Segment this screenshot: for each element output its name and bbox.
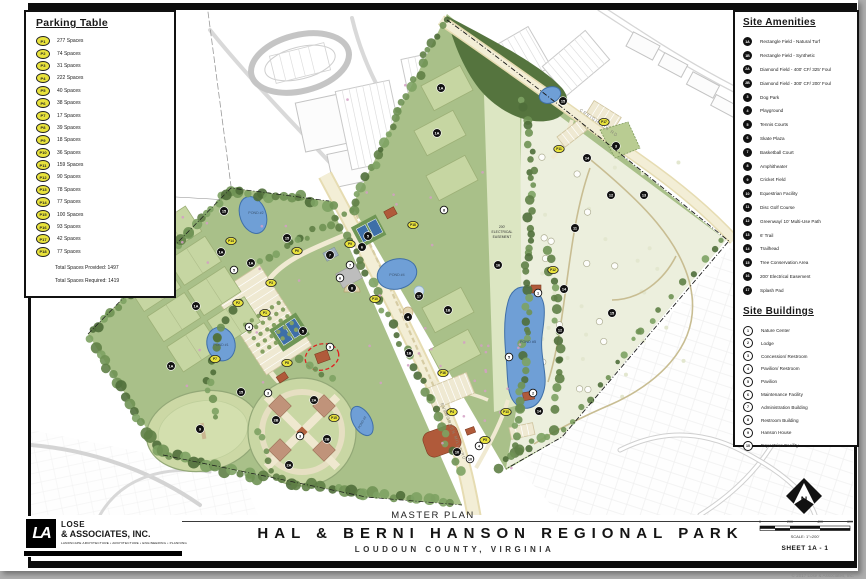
map-parking-marker: P1	[260, 309, 270, 316]
site-amenity-row-marker: 11	[743, 203, 752, 212]
svg-text:P15: P15	[331, 416, 337, 420]
north-arrow-icon: N	[786, 478, 822, 514]
map-building-marker: 3	[296, 432, 304, 440]
map-amenity-marker: 2B	[323, 435, 332, 444]
site-amenity-row-label: Dog Park	[760, 95, 779, 100]
site-amenity-row-label: Basketball Court	[760, 150, 794, 155]
map-parking-marker: P7	[210, 355, 220, 362]
map-amenity-marker: 3	[612, 142, 621, 151]
parking-table-row-label: 38 Spaces	[57, 100, 81, 106]
easement-label-3: EASEMENT	[493, 235, 512, 239]
total-spaces-required: Total Spaces Required: 1419	[55, 278, 174, 284]
parking-table-row-label: 36 Spaces	[57, 150, 81, 156]
map-amenity-marker: 9	[196, 425, 205, 434]
site-amenity-row-marker: 5	[743, 120, 752, 129]
svg-text:P18: P18	[410, 223, 416, 227]
svg-text:2B: 2B	[274, 418, 279, 423]
copyright-note: © 2017 Lose & Associates, Inc.	[792, 573, 854, 578]
site-amenity-row-label: Rectangle Field - Natural Turf	[760, 39, 820, 44]
svg-text:1B: 1B	[407, 351, 412, 356]
svg-text:1A: 1A	[249, 261, 254, 266]
site-amenity-row-marker: 16	[743, 272, 752, 281]
site-amenity-row-label: Skate Plaza	[760, 136, 785, 141]
parking-table-row-label: 77 Spaces	[57, 249, 81, 255]
svg-text:P7: P7	[213, 357, 217, 361]
site-building-row-marker: 8	[743, 415, 753, 425]
firm-name-bottom: & ASSOCIATES, INC.	[61, 529, 151, 539]
site-building-row-marker: 3	[743, 351, 753, 361]
svg-text:P6: P6	[295, 249, 299, 253]
map-amenity-marker: 1A	[167, 362, 176, 371]
parking-table-row: P717 Spaces	[36, 109, 174, 121]
map-parking-marker: P2	[233, 299, 243, 306]
parking-table-row-marker: P3	[36, 61, 50, 71]
map-amenity-marker: 15	[608, 309, 617, 318]
svg-text:5: 5	[508, 355, 510, 359]
site-amenity-row-marker: 15	[743, 258, 752, 267]
map-parking-marker: P11	[554, 145, 564, 152]
site-building-row-label: Hanson House	[761, 430, 791, 435]
total-spaces-provided: Total Spaces Provided: 1497	[55, 265, 174, 271]
svg-text:P14: P14	[228, 239, 234, 243]
site-building-row-marker: 10	[743, 441, 753, 451]
sheet-number: SHEET 1A - 1	[782, 545, 829, 552]
svg-text:9: 9	[329, 345, 331, 349]
parking-table-row-marker: P18	[36, 247, 50, 257]
svg-text:7: 7	[349, 263, 351, 267]
parking-table-row-label: 100 Spaces	[57, 212, 83, 218]
site-building-row: 7Administration Building	[743, 401, 857, 414]
map-parking-marker: P10	[370, 295, 380, 302]
parking-table-row-marker: P8	[36, 123, 50, 133]
site-amenities-title: Site Amenities	[743, 17, 857, 28]
parking-table-row-marker: P13	[36, 185, 50, 195]
map-building-marker: 5	[230, 266, 238, 274]
map-parking-marker: P6	[292, 247, 302, 254]
svg-text:1A: 1A	[219, 250, 224, 255]
map-amenity-marker: 2B	[272, 416, 281, 425]
parking-table-row-marker: P7	[36, 111, 50, 121]
site-amenity-row: 17Splash Pad	[743, 283, 857, 297]
site-building-row: 8Restroom Building	[743, 414, 857, 427]
site-building-row-label: Restroom Building	[761, 418, 799, 423]
title-block: MASTER PLAN HAL & BERNI HANSON REGIONAL …	[172, 508, 853, 560]
firm-tagline: LANDSCAPE ARCHITECTURE • ARCHITECTURE • …	[61, 541, 187, 545]
parking-table-row-label: 159 Spaces	[57, 162, 83, 168]
map-parking-marker: P13	[501, 408, 511, 415]
svg-text:1A: 1A	[169, 364, 174, 369]
map-amenity-marker: 1A	[437, 84, 446, 93]
map-amenity-marker: 15	[237, 388, 246, 397]
site-amenity-row-marker: 13	[743, 231, 752, 240]
svg-text:P17: P17	[601, 120, 607, 124]
parking-table-row-marker: P4	[36, 73, 50, 83]
site-amenity-row-marker: 3	[743, 93, 752, 102]
scale-tick-0: 0	[759, 520, 761, 524]
map-parking-marker: P3	[266, 279, 276, 286]
map-parking-marker: P12	[548, 266, 558, 273]
site-amenity-row: 9Cricket Field	[743, 173, 857, 187]
site-building-row-label: Administration Building	[761, 405, 808, 410]
site-amenity-row-marker: 1A	[743, 37, 752, 46]
plan-sheet: POND #1 POND #2 POND #3 POND #4 POND #5 …	[0, 0, 858, 571]
parking-table-row: P839 Spaces	[36, 122, 174, 134]
map-building-marker: 4	[475, 442, 483, 450]
map-building-marker: 9	[326, 343, 334, 351]
parking-table-row-label: 31 Spaces	[57, 63, 81, 69]
parking-table-row-marker: P16	[36, 222, 50, 232]
site-building-row: 10Equestrian Facility	[743, 439, 857, 452]
site-amenity-row-label: Tree Conservation Area	[760, 260, 808, 265]
map-amenity-marker: 14	[535, 407, 544, 416]
site-amenity-row: 16200' Electrical Easement	[743, 270, 857, 284]
site-building-row-marker: 7	[743, 402, 753, 412]
parking-table-row-marker: P5	[36, 86, 50, 96]
parking-table-row-marker: P11	[36, 160, 50, 170]
north-letter: N	[801, 495, 808, 505]
site-building-row-marker: 1	[743, 326, 753, 336]
map-amenity-marker: 1A	[192, 302, 201, 311]
site-amenity-row-marker: 8	[743, 162, 752, 171]
map-parking-marker: P4	[447, 408, 457, 415]
site-building-row-label: Pavilion/ Restroom	[761, 366, 800, 371]
map-amenity-marker: 1B	[405, 349, 414, 358]
svg-text:P2: P2	[236, 301, 240, 305]
site-amenity-row-marker: 7	[743, 148, 752, 157]
site-amenity-row: 11Disc Golf Course	[743, 201, 857, 215]
svg-text:7: 7	[329, 253, 331, 258]
parking-table-row-label: 222 Spaces	[57, 75, 83, 81]
park-name-title: HAL & BERNI HANSON REGIONAL PARK	[160, 525, 841, 542]
map-amenity-marker: 1A	[433, 129, 442, 138]
map-amenity-marker: 16	[494, 261, 503, 270]
map-amenity-marker: 8	[348, 284, 357, 293]
easement-label-2: ELECTRICAL	[492, 230, 513, 234]
parking-table-row: P274 Spaces	[36, 47, 174, 59]
parking-table-row-label: 77 Spaces	[57, 199, 81, 205]
parking-table-row-label: 18 Spaces	[57, 137, 81, 143]
scale-tick-400: 400	[817, 520, 823, 524]
map-amenity-marker: 15	[559, 97, 568, 106]
site-amenity-row-label: Tennis Courts	[760, 122, 788, 127]
site-amenity-row-marker: 12	[743, 217, 752, 226]
svg-text:1A: 1A	[439, 86, 444, 91]
firm-logo: LA LOSE & ASSOCIATES, INC. LANDSCAPE ARC…	[24, 516, 182, 557]
svg-text:P5: P5	[483, 438, 487, 442]
map-amenity-marker: 1A	[247, 259, 256, 268]
pond2-label: POND #2	[248, 211, 263, 215]
map-amenity-marker: 2A	[285, 461, 294, 470]
site-amenity-row: 7Basketball Court	[743, 145, 857, 159]
site-amenity-row-marker: 6	[743, 134, 752, 143]
easement-label-1: 200'	[499, 225, 506, 229]
site-amenity-row: 10Equestrian Facility	[743, 187, 857, 201]
parking-table-row-label: 17 Spaces	[57, 113, 81, 119]
parking-table-row-marker: P12	[36, 172, 50, 182]
parking-table-row-marker: P14	[36, 197, 50, 207]
map-building-marker: 7	[346, 261, 354, 269]
scale-bar: 0 200 400 600 SCALE: 1"=200' SHEET 1A - …	[759, 520, 853, 552]
svg-text:1B: 1B	[446, 308, 451, 313]
svg-text:2A: 2A	[312, 398, 317, 403]
parking-table-row: P1877 Spaces	[36, 246, 174, 258]
site-amenity-row-label: Trailhead	[760, 246, 779, 251]
map-building-marker: 3	[264, 389, 272, 397]
parking-table-row-label: 39 Spaces	[57, 125, 81, 131]
parking-table-row: P918 Spaces	[36, 134, 174, 146]
site-building-row-marker: 5	[743, 377, 753, 387]
svg-text:P13: P13	[503, 410, 509, 414]
map-amenity-marker: 13	[640, 191, 649, 200]
map-amenity-marker: 7	[326, 251, 335, 260]
map-amenity-marker: 17	[415, 292, 424, 301]
site-amenity-row-label: Equestrian Facility	[760, 191, 798, 196]
pond1-label: POND #1	[213, 343, 228, 347]
parking-table-row: P15100 Spaces	[36, 208, 174, 220]
map-building-marker: 1	[534, 289, 542, 297]
site-amenity-row-marker: 14	[743, 244, 752, 253]
map-parking-marker: P16	[438, 369, 448, 376]
site-amenity-row: 136' Trail	[743, 228, 857, 242]
parking-table-row-label: 90 Spaces	[57, 174, 81, 180]
map-parking-marker: P17	[599, 118, 609, 125]
map-parking-marker: P15	[329, 414, 339, 421]
parking-table-row-marker: P9	[36, 135, 50, 145]
parking-table-row: P1290 Spaces	[36, 171, 174, 183]
map-parking-marker: P9	[345, 240, 355, 247]
site-buildings-title: Site Buildings	[743, 306, 857, 317]
site-building-row-marker: 9	[743, 428, 753, 438]
pond4-label: POND #4	[389, 273, 404, 277]
parking-table-row-label: 78 Spaces	[57, 187, 81, 193]
parking-table-row-label: 74 Spaces	[57, 51, 81, 57]
park-location: LOUDOUN COUNTY, VIRGINIA	[114, 545, 795, 554]
svg-text:1A: 1A	[435, 131, 440, 136]
map-amenity-marker: 12	[607, 191, 616, 200]
parking-table-row-label: 40 Spaces	[57, 88, 81, 94]
map-amenity-marker: 5	[364, 232, 373, 241]
parking-table-row-label: 42 Spaces	[57, 236, 81, 242]
site-amenity-row: 6Skate Plaza	[743, 132, 857, 146]
site-amenity-row: 2BDiamond Field - 300' CF/ 200' Foul	[743, 76, 857, 90]
parking-table-row: P4222 Spaces	[36, 72, 174, 84]
svg-text:P4: P4	[450, 410, 454, 414]
site-building-row-label: Concession/ Restroom	[761, 354, 807, 359]
building-rows: 1Nature Center2Lodge3Concession/ Restroo…	[743, 324, 857, 452]
map-amenity-marker: 1B	[444, 306, 453, 315]
north-scale-block: N 0 200 400 600 SCALE: 1"=200' SHEET 1A …	[752, 476, 858, 560]
map-amenity-marker: 10	[453, 448, 462, 457]
map-amenity-marker: 6	[358, 243, 367, 252]
site-building-row-marker: 2	[743, 338, 753, 348]
map-amenity-marker: 14	[583, 154, 592, 163]
site-amenity-row: 15Tree Conservation Area	[743, 256, 857, 270]
site-amenity-row-label: 6' Trail	[760, 233, 773, 238]
map-amenity-marker: 12	[556, 326, 565, 335]
site-amenity-row: 1BRectangle Field - Synthetic	[743, 49, 857, 63]
parking-table-title: Parking Table	[36, 17, 174, 29]
site-amenity-row-label: Disc Golf Course	[760, 205, 795, 210]
site-amenity-row-marker: 2B	[743, 79, 752, 88]
svg-text:3: 3	[299, 434, 301, 438]
svg-text:P16: P16	[440, 371, 446, 375]
svg-text:1: 1	[537, 291, 539, 295]
map-amenity-marker: 4	[404, 313, 413, 322]
site-amenity-row-label: Splash Pad	[760, 288, 784, 293]
svg-text:2B: 2B	[325, 437, 330, 442]
map-amenity-marker: 1A	[217, 248, 226, 257]
site-amenity-row-marker: 4	[743, 106, 752, 115]
parking-table-row: P540 Spaces	[36, 85, 174, 97]
parking-table-row-marker: P15	[36, 210, 50, 220]
map-amenity-marker: 15	[220, 207, 229, 216]
svg-text:17: 17	[417, 294, 421, 299]
svg-text:8: 8	[443, 208, 445, 212]
map-building-marker: 6	[336, 274, 344, 282]
site-building-row: 6Maintenance Facility	[743, 388, 857, 401]
parking-table-row: P331 Spaces	[36, 60, 174, 72]
parking-table-row: P1693 Spaces	[36, 221, 174, 233]
parking-rows: P1277 SpacesP274 SpacesP331 SpacesP4222 …	[36, 35, 174, 258]
parking-table-row-marker: P2	[36, 49, 50, 59]
parking-table-row: P1378 Spaces	[36, 184, 174, 196]
map-amenity-marker: 11	[571, 224, 580, 233]
svg-text:6: 6	[339, 276, 341, 280]
site-amenity-row-marker: 17	[743, 286, 752, 295]
site-building-row-label: Equestrian Facility	[761, 443, 799, 448]
parking-table-row-label: 277 Spaces	[57, 38, 83, 44]
site-amenity-row: 2ADiamond Field - 400' CF/ 325' Foul	[743, 63, 857, 77]
site-amenity-row: 14Trailhead	[743, 242, 857, 256]
parking-table-row: P1477 Spaces	[36, 196, 174, 208]
map-amenity-marker: 14	[560, 285, 569, 294]
site-building-row: 9Hanson House	[743, 427, 857, 440]
site-amenity-row-label: Rectangle Field - Synthetic	[760, 53, 815, 58]
title-rule	[172, 521, 853, 522]
parking-table-row: P1036 Spaces	[36, 147, 174, 159]
parking-table-row: P1742 Spaces	[36, 233, 174, 245]
site-building-row: 3Concession/ Restroom	[743, 350, 857, 363]
map-parking-marker: P18	[408, 221, 418, 228]
site-amenity-row-label: Amphitheater	[760, 164, 787, 169]
parking-table-row: P11159 Spaces	[36, 159, 174, 171]
svg-text:P3: P3	[269, 281, 273, 285]
parking-table-row-marker: P17	[36, 234, 50, 244]
site-amenity-row: 8Amphitheater	[743, 159, 857, 173]
site-amenity-row-label: Cricket Field	[760, 177, 786, 182]
site-amenity-row: 5Tennis Courts	[743, 118, 857, 132]
map-amenity-marker: 2A	[310, 396, 319, 405]
site-building-row: 5Pavilion	[743, 375, 857, 388]
plan-type-label: MASTER PLAN	[391, 510, 475, 521]
svg-text:P11: P11	[556, 147, 562, 151]
site-building-row-marker: 6	[743, 390, 753, 400]
site-amenity-row-label: Diamond Field - 300' CF/ 200' Foul	[760, 81, 831, 86]
site-amenity-row-label: Playground	[760, 108, 783, 113]
svg-text:10: 10	[455, 450, 459, 455]
svg-text:10: 10	[468, 457, 472, 461]
site-amenity-row-label: 200' Electrical Easement	[760, 274, 810, 279]
site-amenity-row-marker: 9	[743, 175, 752, 184]
site-amenity-row-label: Greenway/ 10' Multi-Use Path	[760, 219, 821, 224]
site-building-row-label: Maintenance Facility	[761, 392, 803, 397]
pond5-label: POND #5	[520, 340, 536, 344]
map-building-marker: 4	[245, 323, 253, 331]
firm-monogram: LA	[26, 519, 56, 548]
svg-text:2: 2	[532, 391, 534, 395]
svg-text:2A: 2A	[287, 463, 292, 468]
site-building-row: 2Lodge	[743, 337, 857, 350]
site-building-row: 4Pavilion/ Restroom	[743, 363, 857, 376]
site-amenity-row: 4Playground	[743, 104, 857, 118]
map-building-marker: 5	[505, 353, 513, 361]
map-building-marker: 8	[440, 206, 448, 214]
site-amenity-row-marker: 2A	[743, 65, 752, 74]
map-amenity-marker: 15	[283, 234, 292, 243]
scale-label: SCALE: 1"=200'	[791, 534, 820, 539]
scale-tick-200: 200	[787, 520, 793, 524]
site-amenity-row-marker: 10	[743, 189, 752, 198]
site-legend: Site Amenities 1ARectangle Field - Natur…	[733, 10, 859, 447]
site-amenity-row-label: Diamond Field - 400' CF/ 325' Foul	[760, 67, 831, 72]
logo-underline	[24, 551, 182, 556]
site-building-row: 1Nature Center	[743, 324, 857, 337]
site-amenity-row: 12Greenway/ 10' Multi-Use Path	[743, 214, 857, 228]
site-building-row-label: Nature Center	[761, 328, 790, 333]
parking-table-row-marker: P6	[36, 98, 50, 108]
site-building-row-label: Pavilion	[761, 379, 777, 384]
svg-text:P1: P1	[263, 311, 267, 315]
site-amenity-row-marker: 1B	[743, 51, 752, 60]
parking-table-row: P1277 Spaces	[36, 35, 174, 47]
parking-table-row: P638 Spaces	[36, 97, 174, 109]
parking-table-row-label: 93 Spaces	[57, 224, 81, 230]
scale-tick-600: 600	[847, 520, 853, 524]
svg-text:P12: P12	[550, 268, 556, 272]
svg-text:P10: P10	[372, 297, 378, 301]
map-parking-marker: P14	[226, 237, 236, 244]
site-amenity-row: 3Dog Park	[743, 90, 857, 104]
parking-table-legend: Parking Table P1277 SpacesP274 SpacesP33…	[24, 10, 176, 298]
svg-text:P9: P9	[348, 242, 352, 246]
svg-text:1A: 1A	[194, 304, 199, 309]
map-amenity-marker: 5	[299, 327, 308, 336]
map-parking-marker: P8	[282, 359, 292, 366]
site-amenity-row: 1ARectangle Field - Natural Turf	[743, 35, 857, 49]
parking-table-row-marker: P1	[36, 36, 50, 46]
firm-name-top: LOSE	[61, 520, 85, 529]
amenity-rows: 1ARectangle Field - Natural Turf1BRectan…	[743, 35, 857, 297]
map-building-marker: 10	[466, 455, 474, 463]
site-building-row-marker: 4	[743, 364, 753, 374]
svg-text:3: 3	[267, 391, 269, 395]
map-building-marker: 2	[529, 389, 537, 397]
svg-text:P8: P8	[285, 361, 289, 365]
svg-text:5: 5	[233, 268, 235, 272]
site-building-row-label: Lodge	[761, 341, 774, 346]
parking-table-row-marker: P10	[36, 148, 50, 158]
